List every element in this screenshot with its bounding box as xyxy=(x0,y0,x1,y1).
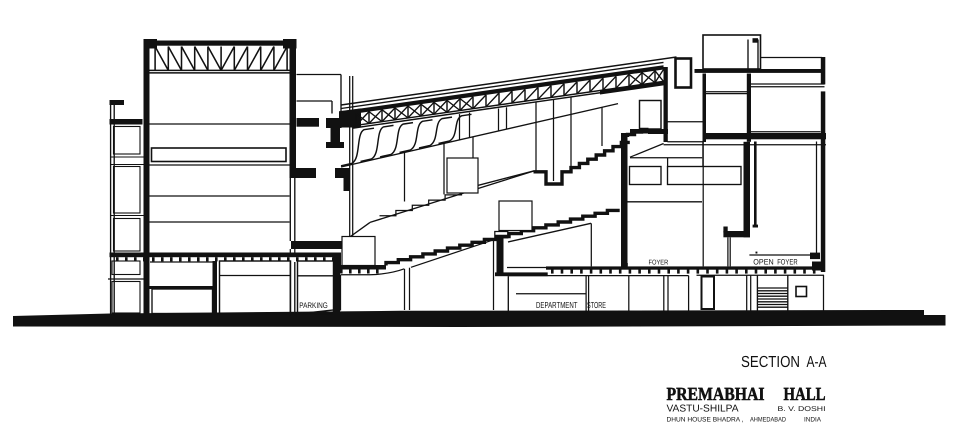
svg-text:SECTION: SECTION xyxy=(741,354,800,371)
svg-text:HALL: HALL xyxy=(784,385,826,405)
svg-text:DHUN HOUSE BHADRA ,: DHUN HOUSE BHADRA , xyxy=(667,417,744,424)
svg-text:VASTU-SHILPA: VASTU-SHILPA xyxy=(667,404,739,415)
svg-text:PARKING: PARKING xyxy=(299,301,328,310)
svg-text:B. V. DOSHI: B. V. DOSHI xyxy=(778,406,826,413)
svg-text:A-A: A-A xyxy=(807,354,827,371)
svg-text:STORE: STORE xyxy=(587,300,606,310)
svg-text:OPEN: OPEN xyxy=(753,257,773,266)
svg-text:FOYER: FOYER xyxy=(777,257,798,266)
svg-text:DEPARTMENT: DEPARTMENT xyxy=(536,300,578,310)
svg-text:AHMEDABAD: AHMEDABAD xyxy=(750,417,786,424)
svg-text:FOYER: FOYER xyxy=(649,259,669,266)
svg-text:INDIA: INDIA xyxy=(804,417,822,424)
svg-text:PREMABHAI: PREMABHAI xyxy=(667,385,765,405)
